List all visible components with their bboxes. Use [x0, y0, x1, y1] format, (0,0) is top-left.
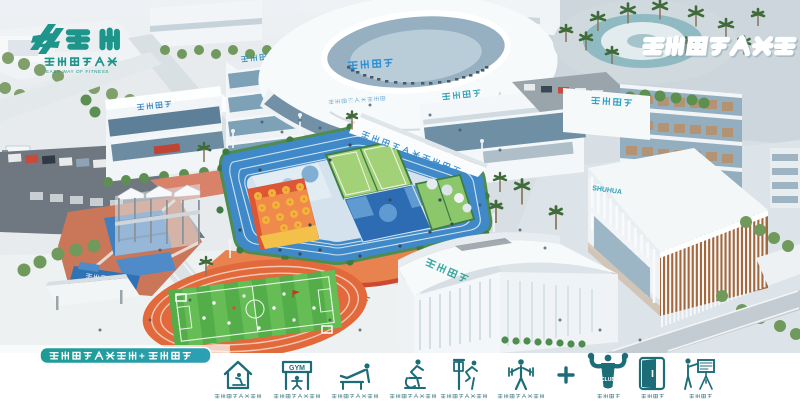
svg-text:EASY WAY OF FITNESS: EASY WAY OF FITNESS [46, 69, 109, 74]
svg-text:GYM: GYM [289, 365, 305, 372]
svg-text:CLUB: CLUB [601, 377, 615, 383]
svg-text:+: + [139, 352, 145, 363]
